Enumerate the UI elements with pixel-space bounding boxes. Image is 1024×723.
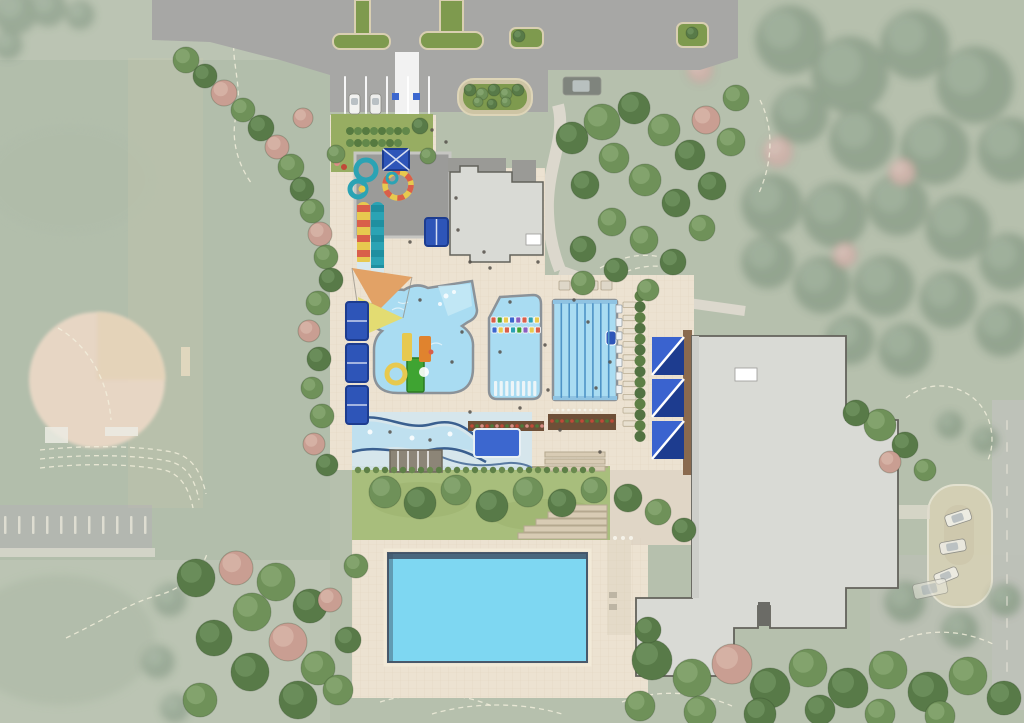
tree [672,518,696,542]
garden-hedge-1-item [362,127,370,135]
floatables-row-2-item [535,327,540,333]
lawn-hedge-item [517,467,523,473]
person-dot [408,240,411,243]
person-dot [572,298,575,301]
tree [556,122,588,154]
planter-flowers-2-item [550,419,554,423]
tree [369,476,401,508]
bollards-item [584,409,587,412]
person-dot [468,260,471,263]
lawn-hedge-item [481,467,487,473]
bollards-item [562,409,565,412]
lawn-hedge-item [427,467,433,473]
tree [269,623,307,661]
tree [630,226,658,254]
pool-shadow-edge [388,553,393,662]
person-dot [543,343,546,346]
tree [488,84,500,96]
tree [293,108,313,128]
spray-dot [438,302,442,306]
hedge-row-item [635,366,646,377]
parking-stripes-item [88,516,91,534]
bench [609,604,617,610]
tree [279,681,317,719]
person-dot [488,266,491,269]
floatables-row-1-item [503,317,508,323]
lap-lane-lines-item [576,303,578,398]
garden-hedge-1-item [346,127,354,135]
tree [673,659,711,697]
lap-lane-lines-item [584,303,586,398]
lawn-hedge-item [463,467,469,473]
garden-hedge-1-item [354,127,362,135]
tree [327,145,345,163]
starting-blocks-item [616,385,622,393]
tree [310,404,334,428]
tree [231,98,255,122]
lawn-hedge-item [436,467,442,473]
lawn-hedge-item [355,467,361,473]
plaza-bollard [621,536,625,540]
tree [581,477,607,503]
hedge-row-item [635,323,646,334]
tree [512,84,524,96]
tree [684,696,716,723]
bollards-item [551,409,554,412]
plunge-pool [474,429,520,457]
tree [318,588,342,612]
play-slide-yellow [402,333,412,361]
planter-flowers-2-item [595,419,599,423]
lawn-hedge-item [508,467,514,473]
tree [692,106,720,134]
planter-flowers-2-item [575,419,579,423]
hedge-row-item [635,355,646,366]
tree [420,148,436,164]
floatables-row-1-item [497,317,502,323]
tree [319,268,343,292]
garden-hedge-2-item [346,139,354,147]
tree [723,85,749,111]
lawn-hedge-item [499,467,505,473]
plaza-bollard [629,536,633,540]
tree [675,140,705,170]
in-pool-loungers-item [522,381,525,396]
tree [501,97,511,107]
planter-flowers-1-item [530,424,534,428]
slide-splash-mat [357,262,370,270]
tree [789,649,827,687]
tree [300,199,324,223]
tree [598,208,626,236]
pool-shadow-edge [388,553,587,559]
garden-hedge-1-item [378,127,386,135]
flower-bed [341,164,347,170]
stall-lines-item [428,76,430,114]
tree [662,189,690,217]
lawn-hedge-item [400,467,406,473]
tree [183,683,217,717]
tree [618,92,650,124]
person-dot [518,406,521,409]
play-slide-orange [419,336,431,362]
planter-flowers-1-item [520,424,524,428]
parking-stripes-item [32,516,35,534]
lawn-hedge-item [382,467,388,473]
tree [344,554,368,578]
bench-step [545,459,605,464]
tree [404,487,436,519]
tree [828,668,868,708]
tree [464,84,476,96]
cabana-row [346,302,368,424]
lawn-hedge-item [490,467,496,473]
tree [193,64,217,88]
floatables-row-2-item [523,327,528,333]
road-dashes-item [1006,420,1008,430]
stall-lines-item [344,76,346,114]
in-pool-loungers-item [533,381,536,396]
tree [219,551,253,585]
starting-blocks-item [616,305,622,313]
person-dot [468,410,471,413]
tree [257,563,295,601]
tree [805,695,835,723]
lap-lane-lines-item [568,303,570,398]
road-dashes-item [1006,442,1008,452]
person-dot [454,196,457,199]
site-plan-canvas [0,0,1024,723]
tree [335,627,361,653]
island-stem [355,0,370,36]
person-dot [586,320,589,323]
lounge-chairs-item [623,355,636,361]
step [518,533,607,539]
lawn-hedge-item [391,467,397,473]
roof-shade [692,336,699,598]
planter-flowers-2-item [580,419,584,423]
tree [987,681,1021,715]
bathhouse-building [448,158,543,262]
planter-flowers-1-item [480,424,484,428]
planter-flowers-1-item [505,424,509,428]
road-dashes-item [1006,618,1008,628]
road-dashes-item [1006,486,1008,496]
floatables-row-1-item [528,317,533,323]
person-dot [546,388,549,391]
island-cap [333,34,390,49]
lawn-hedge-item [526,467,532,473]
in-pool-loungers-item [528,381,531,396]
tree [599,143,629,173]
stall-lines-item [407,76,409,114]
parking-stripes-item [46,516,49,534]
planter-flowers-2-item [600,419,604,423]
bollards-item [595,409,598,412]
accessible-stall-icon [413,93,420,100]
tree [231,653,269,691]
road-dashes-item [1006,574,1008,584]
planter-flowers-1-item [470,424,474,428]
tree [303,433,325,455]
parking-stripes-item [116,516,119,534]
lounge-chairs-item [623,394,636,400]
floatables-row-2-item [517,327,522,333]
tree [686,27,698,39]
person-dot [388,430,391,433]
person-dot [608,360,611,363]
tree [712,644,752,684]
garden-hedge-1-item [370,127,378,135]
in-pool-loungers-item [494,381,497,396]
bollards-item [600,409,603,412]
lounge-chairs-item [623,421,636,427]
in-pool-loungers-item [511,381,514,396]
planter-flowers-1-item [515,424,519,428]
hedge-row-item [635,431,646,442]
bathhouse-skylight [526,234,541,245]
play-detail [429,350,434,355]
planter-flowers-2-item [610,419,614,423]
lounge-chairs-item [623,328,636,334]
tree [316,454,338,476]
photo-wash-left [0,0,330,723]
lounge-chairs-item [623,368,636,374]
car [349,94,360,114]
person-dot [482,250,485,253]
tree [717,128,745,156]
person-dot [456,228,459,231]
lawn-hedge-item [589,467,595,473]
tree [476,490,508,522]
parking-stripes-item [130,516,133,534]
planter-flowers-1-item [485,424,489,428]
play-splash [419,367,429,377]
tree [298,320,320,342]
hedge-row-item [635,420,646,431]
floatables-row-2-item [498,327,503,333]
tree [614,484,642,512]
road-dashes-item [1006,640,1008,650]
tree [177,559,215,597]
spray-dot [452,290,456,294]
floatables-row-1-item [534,317,539,323]
road-dashes-item [1006,662,1008,672]
lawn-hedge-item [553,467,559,473]
bleachers-item [601,281,612,290]
bench [609,592,617,598]
parking-stripes-item [74,516,77,534]
tree [604,258,628,282]
lawn-hedge-item [535,467,541,473]
lawn-hedge-item [580,467,586,473]
hedge-row-item [635,312,646,323]
roof-chimney [758,602,770,626]
tree [301,377,323,399]
garden-hedge-1-item [402,127,410,135]
bleachers-item [559,281,570,290]
hedge-row-item [635,399,646,410]
starting-blocks-item [616,359,622,367]
floatables-row-1-item [491,317,496,323]
parking-stripes-item [144,516,147,534]
tree [914,459,936,481]
person-dot [498,350,501,353]
jet-dot [448,432,453,437]
sail-canopy [652,421,684,459]
person-dot [450,360,453,363]
hedge-row-item [635,334,646,345]
bollards-item [556,409,559,412]
tree [571,171,599,199]
floatables-row-2-item [529,327,534,333]
planter-flowers-2-item [565,419,569,423]
tree [843,400,869,426]
person-dot [536,260,539,263]
accessible-stall-icon [392,93,399,100]
lounge-chairs-item [623,408,636,414]
person-dot [598,450,601,453]
planter-flowers-1-item [475,424,479,428]
tree [306,291,330,315]
tree [571,271,595,295]
in-pool-loungers-item [500,381,503,396]
in-pool-loungers-item [505,381,508,396]
tree [632,640,672,680]
tree [660,249,686,275]
stall-lines-item [365,76,367,114]
starting-blocks-item [616,318,622,326]
garden-hedge-2-item [354,139,362,147]
lawn-hedge-item [544,467,550,473]
bollards-item [573,409,576,412]
spray-dot [444,294,449,299]
hedge-row-item [635,377,646,388]
lap-lane-lines-item [592,303,594,398]
in-pool-loungers-item [516,381,519,396]
tree [513,30,525,42]
lawn-hedge-item [472,467,478,473]
person-dot [460,330,463,333]
tree [513,477,543,507]
road-dashes-item [1006,508,1008,518]
tree [314,245,338,269]
slide-loop-center [359,186,366,193]
lawn-hedge-item [562,467,568,473]
person-dot [444,140,447,143]
road-dashes-item [1006,552,1008,562]
tree [629,164,661,196]
planter-flowers-1-item [540,424,544,428]
planter-flowers-1-item [525,424,529,428]
sail-canopy [652,379,684,417]
car [563,77,601,95]
tree [635,617,661,643]
road-dashes-item [1006,596,1008,606]
lounge-chairs-item [623,315,636,321]
step [524,526,607,532]
hedge-row-item [635,301,646,312]
floatables-row-1-item [522,317,527,323]
tree [473,97,483,107]
lap-lane-lines-item [608,303,610,398]
tree [584,104,620,140]
planter-flowers-1-item [510,424,514,428]
planter-flowers-2-item [555,419,559,423]
plaza-bollard [613,536,617,540]
hedge-row-item [635,409,646,420]
island-stem [440,0,463,34]
floatables-row-1-item [510,317,515,323]
tree [548,489,576,517]
lounge-chairs-item [623,342,636,348]
lawn-hedge-item [364,467,370,473]
tree [625,691,655,721]
boardwalk [683,330,692,475]
planter-flowers-2-item [605,419,609,423]
tree [949,657,987,695]
bench-step [545,452,605,457]
person-dot [428,438,431,441]
car [370,94,381,114]
person-dot [418,298,421,301]
garden-hedge-1-item [394,127,402,135]
starting-blocks-item [616,332,622,340]
garden-hedge-2-item [378,139,386,147]
sail-canopy [652,337,684,375]
floatables-row-2-item [492,327,497,333]
tree [637,279,659,301]
roof-skylight [735,368,757,381]
tree [196,620,232,656]
lawn-hedge-item [445,467,451,473]
tree [211,80,237,106]
lounge-chairs-item [623,381,636,387]
tree [307,347,331,371]
starting-blocks [616,305,622,393]
hedge-row-item [635,388,646,399]
tree [648,114,680,146]
garden-hedge-1-item [386,127,394,135]
starting-blocks-item [616,345,622,353]
tree [570,236,596,262]
planter-flowers-1-item [495,424,499,428]
parking-stripes-item [102,516,105,534]
aquatic-center-site-plan [0,0,1024,723]
floatables-row-2-item [504,327,509,333]
person-dot [594,386,597,389]
lawn-hedge-item [571,467,577,473]
floatables-row-2-item [511,327,516,333]
road-dashes-item [1006,464,1008,474]
tree [865,699,895,723]
garden-hedge-2-item [362,139,370,147]
tree [308,222,332,246]
stall-lines-item [386,76,388,114]
bollards-item [589,409,592,412]
starting-blocks-item [616,372,622,380]
person-dot [558,428,561,431]
lap-lane-lines-item [600,303,602,398]
sail-canopy-row [652,337,684,459]
tree [441,475,471,505]
planter-flowers-2-item [585,419,589,423]
garden-hedge-2-item [394,139,402,147]
big-pool-water [388,553,587,662]
planter-flowers-1-item [500,424,504,428]
tree [233,593,271,631]
lap-lane-lines-item [561,303,563,398]
